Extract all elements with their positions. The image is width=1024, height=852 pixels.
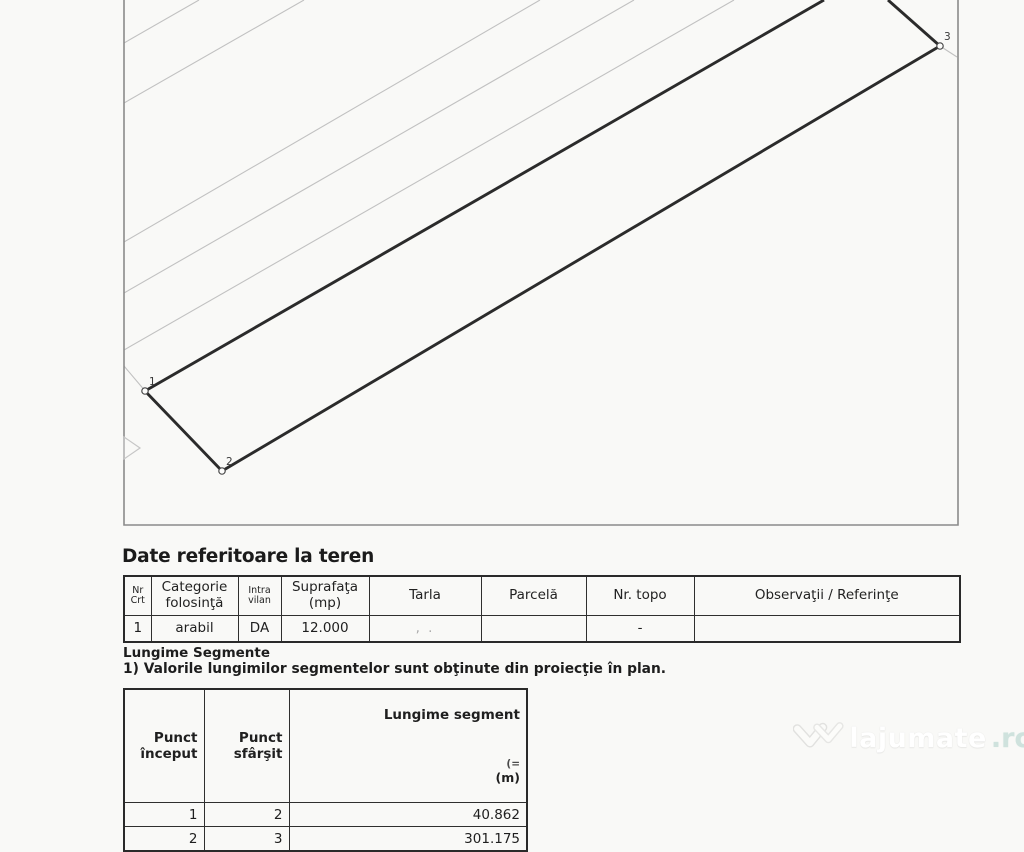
plan-frame-border: [124, 0, 958, 525]
vertex-label: 3: [944, 31, 951, 43]
contour-line: [124, 0, 734, 350]
cell-segment-length: 40.862: [289, 803, 527, 827]
col-header-parcela: Parcelă: [481, 576, 586, 616]
vertex-marker: [219, 468, 225, 474]
col-header-observatii: Observaţii / Referinţe: [694, 576, 960, 616]
watermark-tld-text: .ro: [991, 723, 1024, 754]
cell-parcela: [481, 616, 586, 643]
unit-label: (m): [496, 770, 520, 785]
cell-segment-end: 2: [204, 803, 289, 827]
col-header-punct-inceput: Punct început: [124, 689, 204, 803]
segment-row: 1 2 40.862: [124, 803, 527, 827]
col-header-nr-crt: Nr Crt: [124, 576, 151, 616]
cell-segment-length: 301.175: [289, 827, 527, 852]
cell-segment-end: 3: [204, 827, 289, 852]
contour-line: [124, 0, 634, 293]
parcel-edge: [222, 46, 940, 471]
cell-categorie: arabil: [151, 616, 238, 643]
col-header-intravilan: Intra vilan: [238, 576, 281, 616]
col-header-categorie: Categorie folosinţă: [151, 576, 238, 616]
segments-note: 1) Valorile lungimilor segmentelor sunt …: [123, 661, 666, 677]
cell-observatii: [694, 616, 960, 643]
contour-line: [124, 0, 540, 242]
contour-line: [124, 0, 304, 103]
segments-section-title: Lungime Segmente: [123, 645, 270, 661]
cell-segment-start: 1: [124, 803, 204, 827]
parcel-plan-drawing: 123: [0, 0, 1024, 546]
terrain-table-header-row: Nr Crt Categorie folosinţă Intra vilan S…: [124, 576, 960, 616]
col-header-punct-sfarsit: Punct sfârşit: [204, 689, 289, 803]
cell-tarla: , .: [369, 616, 481, 643]
parcel-edge: [145, 0, 824, 391]
vertex-marker: [142, 388, 148, 394]
cell-nr-crt: 1: [124, 616, 151, 643]
vertex-label: 1: [149, 376, 156, 388]
scanned-cadastral-document-page: { "plan": { "colors": { "parcel": "#2b2b…: [0, 0, 1024, 768]
lungime-segment-label: Lungime segment: [292, 707, 521, 723]
segment-row: 2 3 301.175: [124, 827, 527, 852]
lungime-segment-unit: (= (m): [292, 740, 521, 786]
cell-nr-topo: -: [586, 616, 694, 643]
watermark-brand-text: lajumate: [849, 723, 987, 754]
terrain-table-data-row: 1 arabil DA 12.000 , . -: [124, 616, 960, 643]
col-header-suprafata: Suprafaţa (mp): [281, 576, 369, 616]
site-watermark: lajumate.ro: [793, 712, 1024, 764]
col-header-nr-topo: Nr. topo: [586, 576, 694, 616]
col-header-lungime-segment: Lungime segment (= (m): [289, 689, 527, 803]
chevron-marker-icon: [124, 437, 140, 459]
segments-table-header-row: Punct început Punct sfârşit Lungime segm…: [124, 689, 527, 803]
cell-suprafata: 12.000: [281, 616, 369, 643]
parcel-edge: [888, 0, 940, 46]
vertex-marker: [937, 43, 943, 49]
vertex-label: 2: [226, 456, 233, 468]
col-header-tarla: Tarla: [369, 576, 481, 616]
segments-table: Punct început Punct sfârşit Lungime segm…: [123, 688, 528, 852]
terrain-table: Nr Crt Categorie folosinţă Intra vilan S…: [123, 575, 961, 643]
lajumate-logo-icon: [793, 713, 845, 763]
cell-segment-start: 2: [124, 827, 204, 852]
terrain-section-title: Date referitoare la teren: [122, 546, 374, 567]
cell-intravilan: DA: [238, 616, 281, 643]
parcel-edge: [145, 391, 222, 471]
contour-line: [124, 0, 199, 43]
